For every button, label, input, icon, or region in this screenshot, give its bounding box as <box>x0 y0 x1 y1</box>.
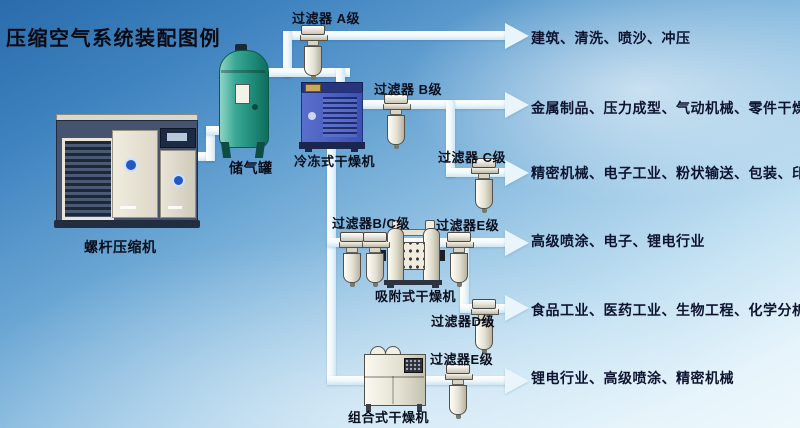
application-line-1: 建筑、清洗、喷沙、冲压 <box>531 28 691 48</box>
tank-nameplate <box>235 84 250 104</box>
label-filter-e-bottom: 过滤器E级 <box>430 349 493 368</box>
tank-seam <box>221 70 265 73</box>
compressor-vent-grille <box>62 138 114 220</box>
screw-compressor-illustration <box>54 110 202 232</box>
page-title: 压缩空气系统装配图例 <box>6 22 221 51</box>
flow-arrow-icon <box>505 295 529 321</box>
tank-port <box>252 104 258 110</box>
diagram-canvas: 压缩空气系统装配图例 过滤器 A级 过滤器 B级 过滤器 C级 过滤器B/C级 … <box>0 0 800 428</box>
filter-icon <box>300 25 326 80</box>
label-combined-dryer: 组合式干燥机 <box>348 407 429 426</box>
combined-dryer-illustration <box>362 346 428 412</box>
label-adsorption-dryer: 吸附式干燥机 <box>375 286 456 305</box>
filter-icon <box>446 232 472 287</box>
control-box <box>403 242 425 270</box>
label-compressor: 螺杆压缩机 <box>84 237 157 257</box>
label-tank: 储气罐 <box>229 158 273 178</box>
filter-icon <box>383 94 409 149</box>
filter-icon <box>445 364 471 419</box>
label-filter-a: 过滤器 A级 <box>292 8 360 27</box>
label-filter-d: 过滤器D级 <box>431 311 495 330</box>
application-line-5: 食品工业、医药工业、生物工程、化学分析 <box>531 300 800 320</box>
filter-icon <box>362 232 388 287</box>
dryer-grille <box>323 97 357 137</box>
panel-seam <box>364 376 424 378</box>
label-filter-b: 过滤器 B级 <box>374 79 442 98</box>
flow-arrow-icon <box>505 230 529 256</box>
air-tank-illustration <box>219 44 267 158</box>
tank-leg <box>255 142 265 158</box>
adsorption-tower <box>387 228 404 282</box>
compressor-front-panel <box>112 130 158 218</box>
brand-logo-icon <box>124 158 138 172</box>
application-line-3: 精密机械、电子工业、粉状输送、包装、印刷 <box>531 163 800 183</box>
pipe-segment <box>327 148 336 382</box>
brand-logo-icon <box>172 174 185 187</box>
flow-arrow-icon <box>505 160 529 186</box>
flow-arrow-icon <box>505 92 529 118</box>
label-cold-dryer: 冷冻式干燥机 <box>294 151 375 170</box>
refrigerated-dryer-illustration <box>299 82 365 152</box>
dryer-grille <box>404 358 423 373</box>
application-line-2: 金属制品、压力成型、气动机械、零件干燥 <box>531 98 800 118</box>
label-filter-e-mid: 过滤器E级 <box>436 215 499 234</box>
dryer-control-panel <box>305 84 321 92</box>
side-valve <box>440 250 445 261</box>
label-filter-bc: 过滤器B/C级 <box>332 213 410 232</box>
brand-logo-icon <box>308 112 316 120</box>
brand-mark <box>120 206 136 209</box>
application-line-4: 高级喷涂、电子、锂电行业 <box>531 231 705 251</box>
pipe-segment <box>358 100 506 109</box>
filter-icon <box>471 158 497 213</box>
flow-arrow-icon <box>505 368 529 394</box>
adsorption-tower <box>423 228 440 282</box>
dryer-base <box>299 142 365 149</box>
panel-seam <box>392 376 394 404</box>
application-line-6: 锂电行业、高级喷涂、精密机械 <box>531 368 734 388</box>
flow-arrow-icon <box>505 23 529 49</box>
brand-mark <box>168 206 182 209</box>
label-filter-c: 过滤器 C级 <box>438 147 506 166</box>
compressor-base <box>54 220 200 228</box>
display-screen <box>167 133 187 141</box>
